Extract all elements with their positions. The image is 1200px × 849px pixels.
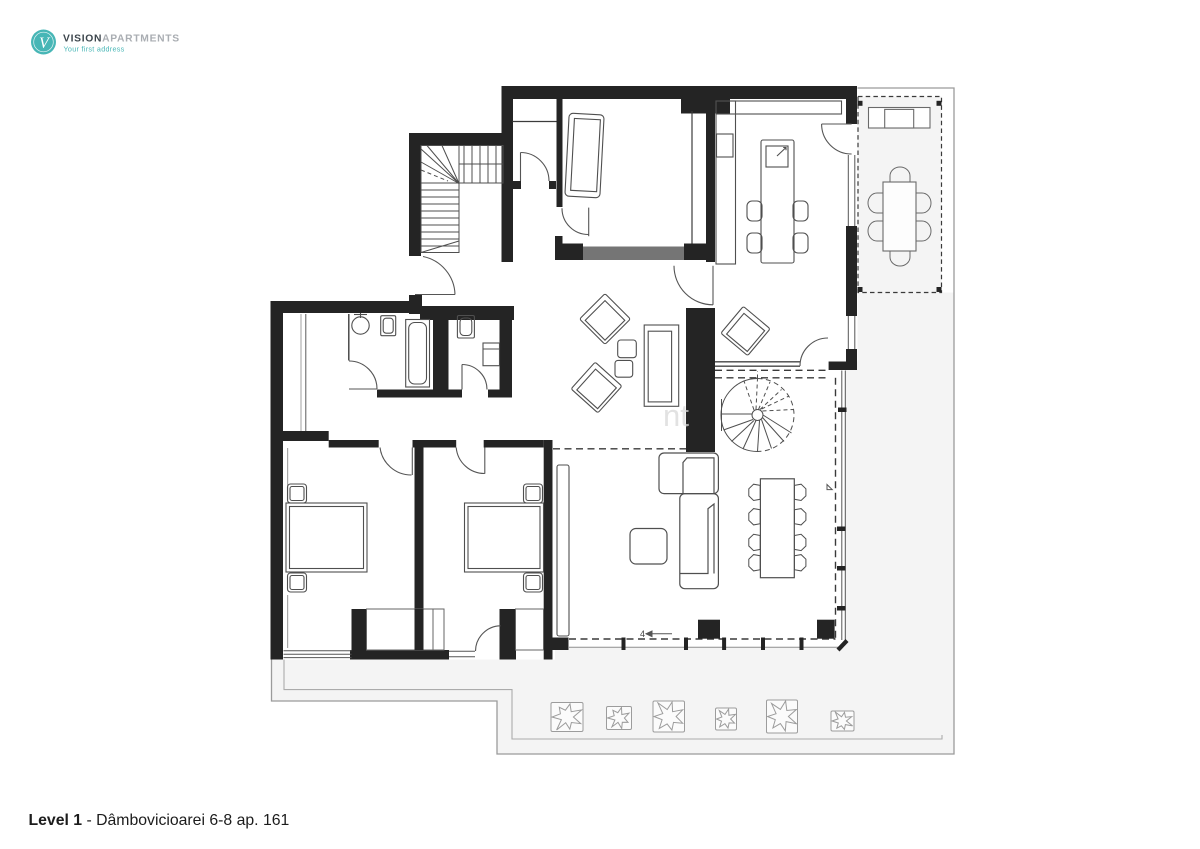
svg-text:Your first address: Your first address: [64, 45, 125, 54]
svg-text:nt: nt: [663, 398, 689, 433]
svg-text:VISIONAPARTMENTS: VISIONAPARTMENTS: [63, 34, 180, 45]
svg-text:Level 1 - Dâmbovicioarei 6-8 a: Level 1 - Dâmbovicioarei 6-8 ap. 161: [29, 812, 290, 829]
svg-text:4: 4: [640, 629, 645, 639]
